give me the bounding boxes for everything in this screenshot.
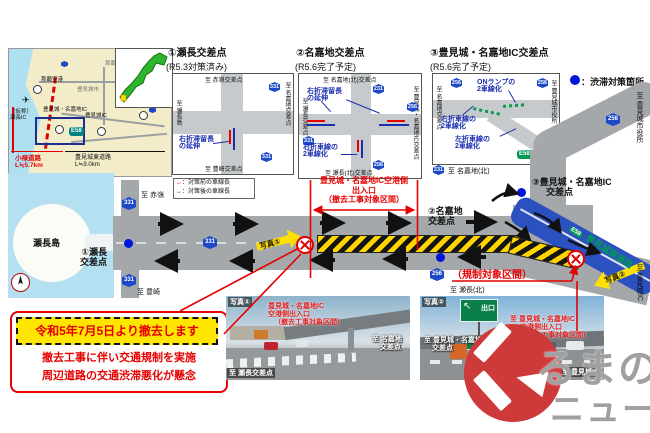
logo-ku-bar2 [473,370,512,411]
lane-direction-arrows [158,222,490,261]
logo-ku-bar1 [473,322,512,363]
removal-zone-bracket [311,180,418,278]
infographic-canvas: ✈ 那覇空港 那覇市 豊見城市 （仮称） 瀬長IC 豊見城・名嘉地IC E58 … [0,0,650,433]
logo-text-news: ニュース [550,382,650,433]
kuruma-news-logo: るまの ニュース [462,322,650,432]
junction-flow-arrows [492,192,597,252]
